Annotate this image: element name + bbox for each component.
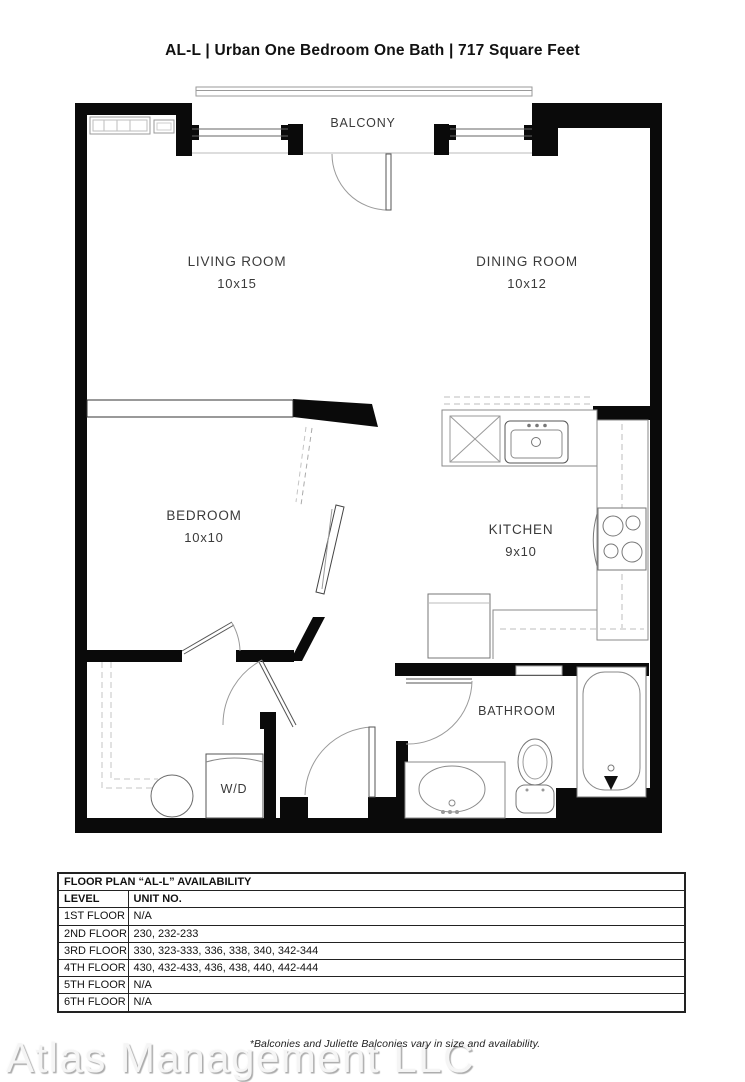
bathtub (577, 667, 646, 797)
room-label-bedroom: BEDROOM (166, 508, 241, 523)
unit-cell: 230, 232-233 (128, 925, 685, 942)
level-cell: 6TH FLOOR (58, 994, 128, 1012)
unit-cell: N/A (128, 908, 685, 925)
room-dims-living: 10x15 (217, 276, 256, 291)
table-header-row: LEVEL UNIT NO. (58, 891, 685, 908)
baseboard-heater (90, 117, 174, 134)
level-cell: 1ST FLOOR (58, 908, 128, 925)
room-label-kitchen: KITCHEN (489, 522, 554, 537)
availability-table: FLOOR PLAN “AL-L” AVAILABILITY LEVEL UNI… (57, 872, 686, 1013)
washer-dryer-label: W/D (221, 782, 248, 796)
bedroom-door (182, 622, 240, 654)
laundry-door (223, 660, 296, 727)
living-bedroom-divider-wall (87, 400, 293, 417)
unit-cell: 330, 323-333, 336, 338, 340, 342-344 (128, 942, 685, 959)
table-row: 2ND FLOOR 230, 232-233 (58, 925, 685, 942)
balcony-door (332, 154, 391, 210)
col-header-level: LEVEL (58, 891, 128, 908)
table-row: 3RD FLOOR 330, 323-333, 336, 338, 340, 3… (58, 942, 685, 959)
table-row: 6TH FLOOR N/A (58, 994, 685, 1012)
level-cell: 4TH FLOOR (58, 959, 128, 976)
room-dims-kitchen: 9x10 (505, 544, 536, 559)
room-dims-bedroom: 10x10 (184, 530, 223, 545)
entry-door (305, 727, 375, 797)
balcony-railing (196, 87, 532, 96)
stove (593, 508, 646, 570)
refrigerator (428, 594, 490, 658)
table-row: 4TH FLOOR 430, 432-433, 436, 438, 440, 4… (58, 959, 685, 976)
table-title-row: FLOOR PLAN “AL-L” AVAILABILITY (58, 873, 685, 891)
unit-cell: N/A (128, 994, 685, 1012)
level-cell: 2ND FLOOR (58, 925, 128, 942)
room-dims-dining: 10x12 (507, 276, 546, 291)
level-cell: 5TH FLOOR (58, 977, 128, 994)
footnote: *Balconies and Juliette Balconies vary i… (0, 1038, 745, 1050)
room-label-bathroom: BATHROOM (478, 704, 556, 718)
room-label-living: LIVING ROOM (188, 254, 287, 269)
col-header-unit-no: UNIT NO. (128, 891, 685, 908)
water-heater (151, 775, 193, 817)
bathroom-shelf (516, 666, 562, 675)
bathroom-door (406, 679, 472, 744)
table-row: 1ST FLOOR N/A (58, 908, 685, 925)
window-lines (192, 129, 532, 136)
room-label-balcony: BALCONY (330, 116, 395, 130)
unit-cell: 430, 432-433, 436, 438, 440, 442-444 (128, 959, 685, 976)
floor-plan-drawing: BALCONY LIVING ROOM 10x15 DINING ROOM 10… (0, 0, 745, 862)
sliding-door (296, 427, 344, 594)
table-title: FLOOR PLAN “AL-L” AVAILABILITY (58, 873, 685, 891)
unit-cell: N/A (128, 977, 685, 994)
table-row: 5TH FLOOR N/A (58, 977, 685, 994)
toilet (516, 739, 554, 813)
vanity-sink (405, 762, 505, 818)
level-cell: 3RD FLOOR (58, 942, 128, 959)
closet-rod (102, 662, 158, 788)
exterior-walls (75, 103, 662, 833)
room-label-dining: DINING ROOM (476, 254, 578, 269)
